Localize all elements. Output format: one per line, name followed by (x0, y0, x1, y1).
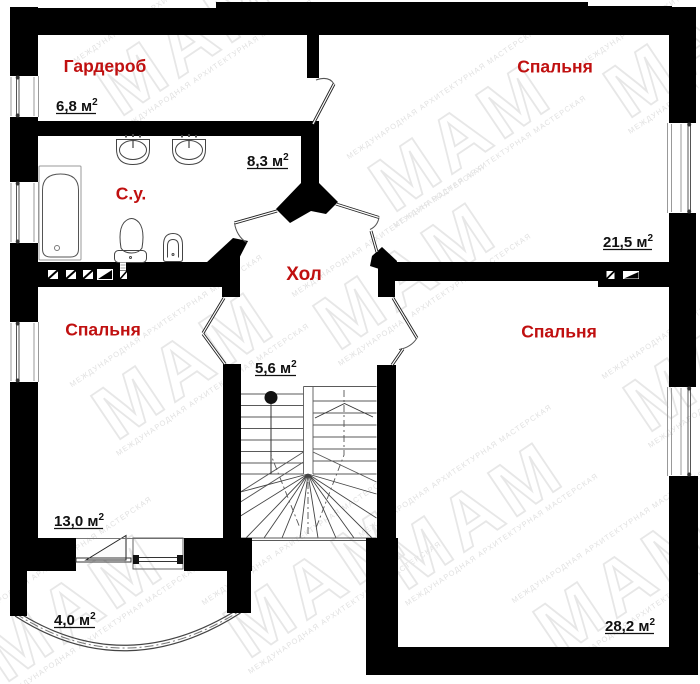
svg-text:21,5 м2: 21,5 м2 (603, 233, 653, 251)
svg-text:6,8 м2: 6,8 м2 (56, 97, 98, 115)
svg-text:5,6 м2: 5,6 м2 (255, 359, 297, 377)
svg-text:8,3 м2: 8,3 м2 (247, 152, 289, 170)
svg-text:Спальня: Спальня (65, 320, 141, 340)
svg-text:Гардероб: Гардероб (64, 56, 147, 76)
svg-text:Хол: Хол (286, 264, 322, 285)
svg-text:С.у.: С.у. (116, 184, 147, 204)
svg-text:Спальня: Спальня (521, 322, 597, 342)
svg-text:Спальня: Спальня (517, 57, 593, 77)
svg-text:13,0 м2: 13,0 м2 (54, 512, 104, 530)
svg-text:28,2 м2: 28,2 м2 (605, 617, 655, 635)
svg-text:4,0 м2: 4,0 м2 (54, 611, 96, 629)
